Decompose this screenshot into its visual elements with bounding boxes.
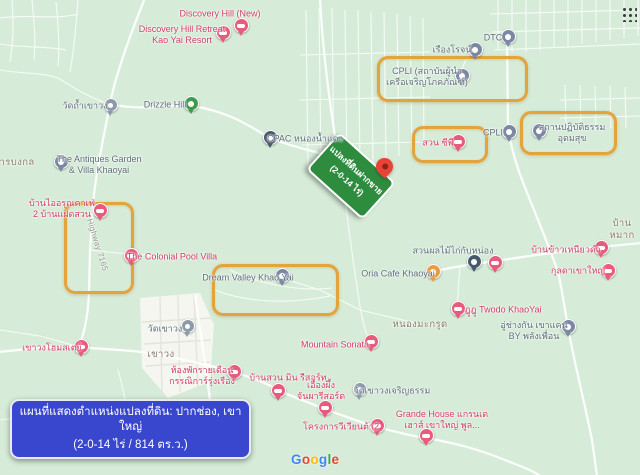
antiques-garden-label[interactable]: The Antiques Garden & Villa Khaoyai [56, 154, 141, 177]
vivienta2-label[interactable]: โครงการวีเวียนต้า2 [303, 421, 379, 432]
fruit-garden-label[interactable]: สวนผลไม้ไก่กับหน่อง [413, 245, 494, 256]
grande-house-label[interactable]: Grande House แกรนเด เฮาส์ เขาใหญ่ พูล... [396, 409, 488, 432]
wat-charoen-label[interactable]: วัดเขาวงเจริญธรรม [354, 385, 431, 396]
mountain-sonata-label[interactable]: Mountain Sonata [301, 339, 369, 350]
drizzle-hill-label[interactable]: Drizzle Hill [144, 99, 187, 110]
wat-khaowong-label[interactable]: วัดเขาวง [148, 323, 183, 334]
monthly-room-label[interactable]: ห้องพักรายเดือน กรรณิการ์รุ่งเรือง [169, 365, 235, 388]
meditation-center-label[interactable]: สถานปฏิบัติธรรม อุดมสุข [539, 122, 606, 145]
oria-cafe-label[interactable]: Oria Cafe Khaoyai [361, 268, 435, 279]
garage-label[interactable]: อู่ช่างกัน เขาแคน BY พลังเพื่อน [500, 320, 567, 343]
khaowong-homestay-label[interactable]: เขาวงโฮมสเตย์ [22, 342, 82, 353]
baan-mak-label: บ้านหมาก [609, 218, 634, 242]
discovery-hill-retreat-label[interactable]: Discovery Hill Retreat Kao Yai Resort [139, 24, 226, 47]
google-logo-letter: e [332, 452, 340, 467]
cpac-label[interactable]: CPAC หนองน้ำแดง [267, 133, 343, 144]
than-bongkol-label: ธารบงกล [0, 157, 35, 169]
nong-makrut-label: หนองมะกรูด [392, 319, 447, 331]
dream-valley-label[interactable]: Dream Valley Khao Yai [202, 272, 294, 283]
kulada-khaoyai-label[interactable]: กุลดาเขาใหญ่ [551, 265, 605, 276]
caption-line2: (2-0-14 ไร่ / 814 ตร.ว.) [73, 438, 188, 453]
wat-tham-khaowong-label[interactable]: วัดถ้ำเขาวง [62, 100, 107, 111]
khao-niao-dam-label[interactable]: บ้านข้าวเหนียวดำ [531, 244, 601, 255]
baan-i-arun-label[interactable]: บ้านไออรุณคาเฟ่ 2 บ้านแฝดสวน [29, 198, 95, 221]
google-logo-letter: o [310, 452, 319, 467]
discovery-hill-new-label[interactable]: Discovery Hill (New) [179, 8, 260, 19]
colonial-pool-villa-label[interactable]: The Colonial Pool Villa [127, 251, 217, 262]
cpli-institute-label[interactable]: CPLI (สถาบันผู้นำ เครือเจริญโภคภัณฑ์) [386, 66, 468, 89]
map-canvas[interactable]: แปลงที่ดินฝากขาย (2-0-14 ไร่) Discovery … [0, 0, 640, 475]
suan-cp-label[interactable]: สวน ซีพี [422, 137, 453, 148]
apps-grid-icon[interactable] [620, 5, 637, 22]
map-caption: แผนที่แสดงตำแหน่งแปลงที่ดิน: ปากช่อง, เข… [10, 399, 251, 459]
google-logo[interactable]: Google [291, 452, 339, 467]
highway-7165-label: Highway 7165 [84, 218, 109, 273]
rueangrot-label[interactable]: เรืองโรจน์ [433, 44, 472, 55]
dtc-label[interactable]: DTC [484, 32, 503, 43]
caption-line1: แผนที่แสดงตำแหน่งแปลงที่ดิน: ปากช่อง, เข… [12, 405, 249, 435]
twodo-khaoyai-label[interactable]: ฎูฎู Twodo KhaoYai [465, 304, 542, 315]
khaowong-area-label: เขาวง [147, 349, 174, 361]
cpli-label[interactable]: CPLI [483, 127, 503, 138]
ueang-phueng-label[interactable]: เอื้องผึ้ง จันผารีสอร์ต [297, 380, 345, 403]
google-logo-letter: G [291, 452, 302, 467]
